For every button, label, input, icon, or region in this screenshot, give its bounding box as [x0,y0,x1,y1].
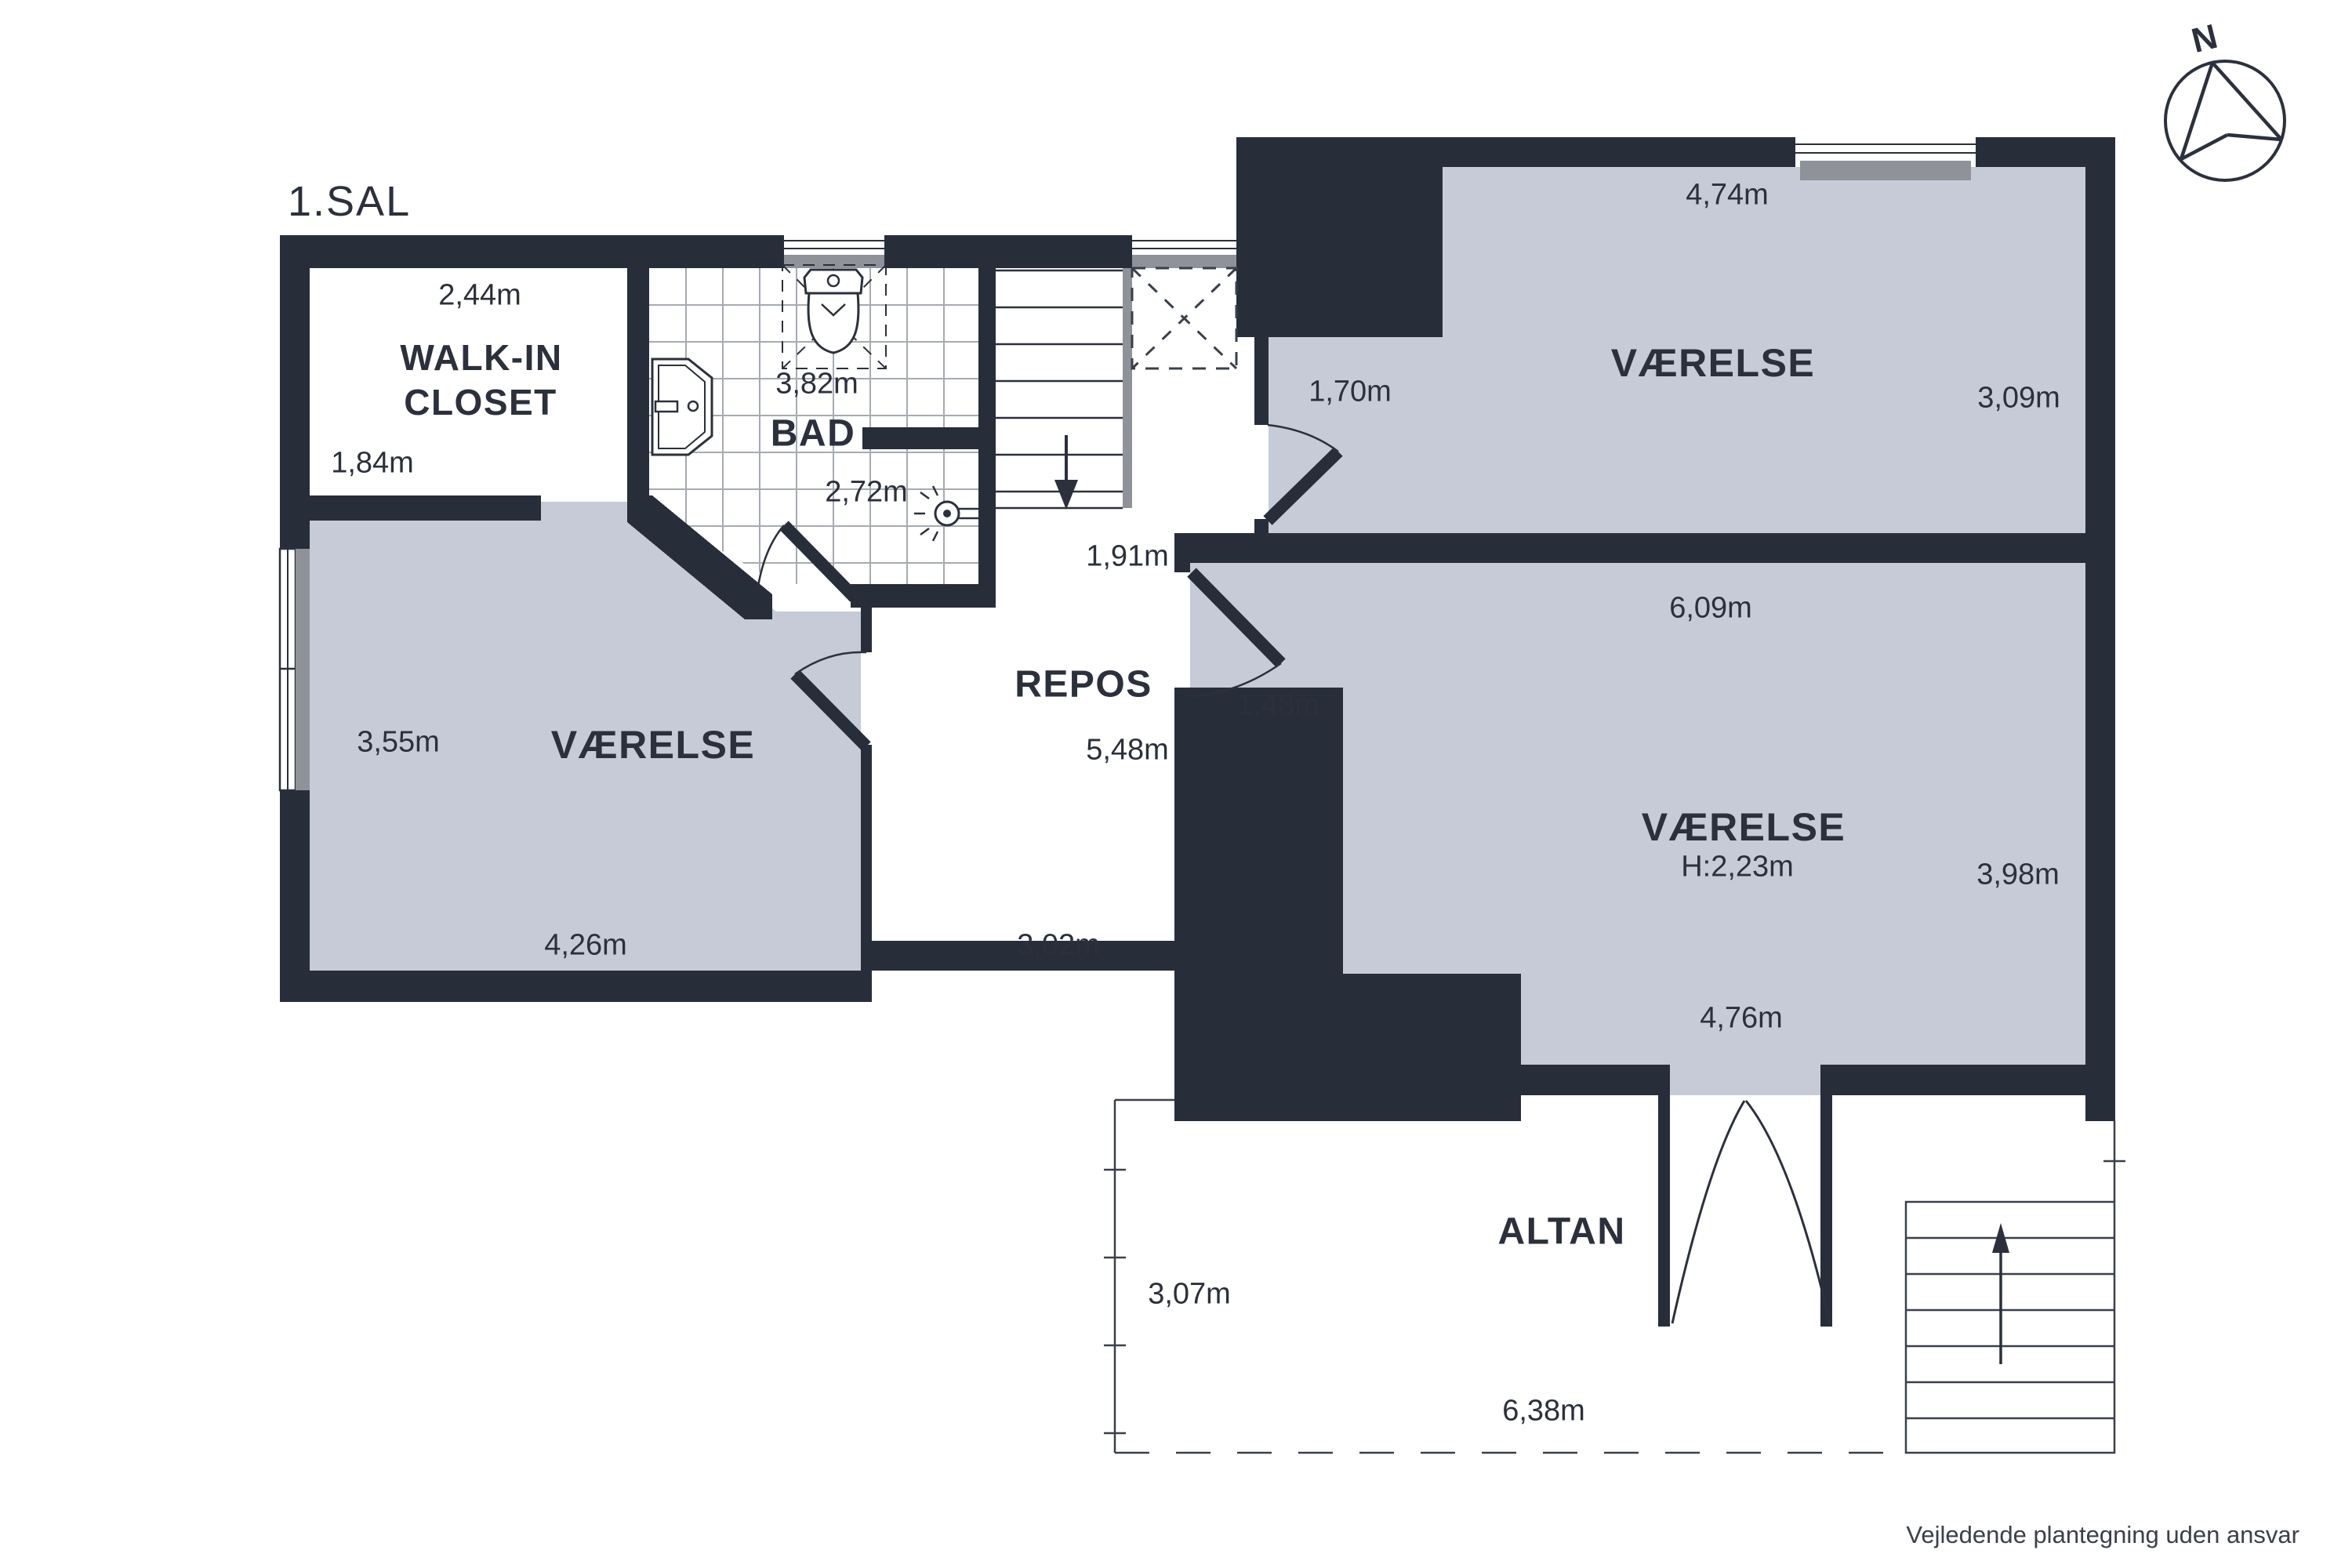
repos-name: REPOS [1014,663,1152,706]
exterior-stairs-icon [1906,1202,2114,1453]
se-room-height-dim: H:2,23m [1681,851,1794,884]
closet-name-line1: WALK-IN [400,336,562,379]
left-room-name: VÆRELSE [551,722,756,768]
ne-room-width-dim: 4,74m [1686,179,1769,212]
balcony-width-dim: 6,38m [1502,1395,1585,1428]
bath-name: BAD [771,412,856,456]
floor-plan-page: 1.SAL 2,44m WALK-IN CLOSET 1,84m 3,55m V… [0,0,2352,1568]
ne-room-door-dim: 1,70m [1308,376,1392,409]
page-title: 1.SAL [288,177,411,226]
closet-depth-dim: 1,84m [331,447,414,481]
se-room-door-dim: 1,48m [1236,689,1319,723]
se-room-name: VÆRELSE [1642,804,1846,850]
stair-width-dim: 1,91m [1086,540,1169,574]
left-room-depth-dim: 3,55m [357,726,440,760]
bath-width-dim: 3,82m [775,368,858,401]
closet-width-dim: 2,44m [438,279,521,313]
repos-width-dim: 3,02m [1017,929,1100,963]
ne-room-name: VÆRELSE [1611,340,1816,386]
left-room-width-dim: 4,26m [544,929,627,963]
se-room-depth-dim: 3,98m [1976,858,2060,892]
se-room-width-top-dim: 6,09m [1669,592,1752,626]
stair-void-marker [1132,268,1236,368]
closet-name-line2: CLOSET [404,381,557,423]
repos-depth-dim: 5,48m [1086,734,1169,768]
stair-handrail [1123,268,1132,508]
bath-depth-dim: 2,72m [825,476,908,510]
floor-plan-drawing [0,0,2352,1568]
balcony-name: ALTAN [1497,1210,1625,1254]
balcony-depth-dim: 3,07m [1148,1278,1231,1312]
ne-room-depth-dim: 3,09m [1977,382,2060,416]
interior-stairs-icon [996,268,1132,510]
disclaimer-text: Vejledende plantegning uden ansvar [1906,1521,2299,1549]
compass-north-icon [2165,61,2285,180]
se-room-width-bottom-dim: 4,76m [1700,1002,1783,1036]
sink-icon [652,359,712,455]
